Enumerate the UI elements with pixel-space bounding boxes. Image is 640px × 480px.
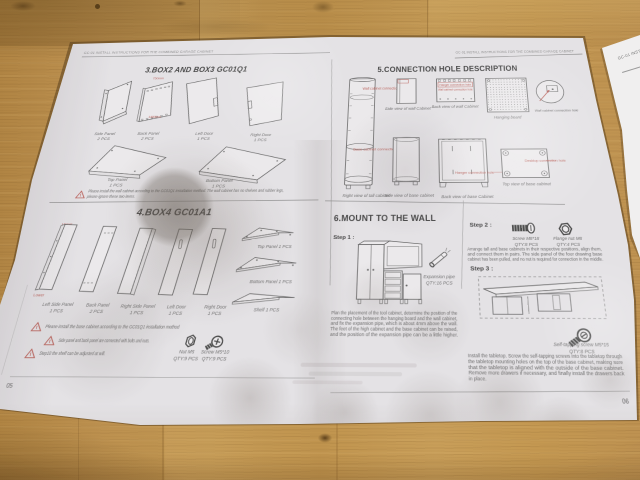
svg-text:please ignore these two items.: please ignore these two items. — [85, 194, 135, 199]
svg-text:Back view of base Cabinet: Back view of base Cabinet — [441, 195, 495, 200]
svg-text:4.BOX4 GC01A1: 4.BOX4 GC01A1 — [135, 207, 213, 218]
svg-text:QTY:16 PCS: QTY:16 PCS — [426, 281, 454, 286]
svg-text:Step 2 :: Step 2 : — [469, 222, 492, 228]
svg-text:Bottom Panel 1 PCS: Bottom Panel 1 PCS — [249, 279, 293, 284]
svg-text:Lower: Lower — [33, 292, 45, 297]
svg-text:!: ! — [29, 352, 32, 358]
svg-text:and the position of the expans: and the position of the expansion pipe c… — [330, 332, 458, 338]
svg-text:QTY:9 PCS: QTY:9 PCS — [201, 356, 227, 362]
svg-text:1 PCS: 1 PCS — [207, 311, 222, 316]
svg-text:05: 05 — [6, 382, 15, 389]
svg-text:1 PCS: 1 PCS — [168, 311, 183, 316]
svg-text:Top Panel 1 PCS: Top Panel 1 PCS — [257, 244, 293, 249]
svg-text:GC-01 INSTALL INSTRUCTIONS FO: GC-01 INSTALL INSTRUCTIONS FOR THE COMBI… — [455, 49, 574, 54]
svg-text:Back Panel: Back Panel — [86, 303, 111, 308]
svg-text:2 PCS: 2 PCS — [96, 137, 111, 141]
svg-text:1 PCS: 1 PCS — [109, 183, 124, 187]
svg-text:!: ! — [48, 339, 51, 345]
svg-text:Screw M5*10: Screw M5*10 — [201, 349, 230, 355]
svg-text:Self-tapping screw M5*15: Self-tapping screw M5*15 — [553, 342, 609, 348]
svg-text:Expansion pipe: Expansion pipe — [423, 274, 455, 279]
svg-text:Wall cabinet connection hole: Wall cabinet connection hole — [535, 108, 579, 112]
svg-text:Screw M8*18: Screw M8*18 — [512, 236, 539, 241]
svg-text:1 PCS: 1 PCS — [49, 308, 64, 313]
svg-text:Flange nut M8: Flange nut M8 — [553, 236, 583, 241]
svg-text:Please install the wall cabine: Please install the wall cabinet accordin… — [88, 188, 284, 193]
svg-text:1 PCS: 1 PCS — [197, 137, 211, 141]
svg-text:Right Door: Right Door — [250, 133, 272, 137]
svg-text:Left Side Panel: Left Side Panel — [42, 302, 75, 307]
svg-text:Right Side Panel: Right Side Panel — [120, 304, 156, 309]
svg-text:Top view of base cabinet: Top view of base cabinet — [502, 182, 552, 187]
svg-text:Desktop connection hole: Desktop connection hole — [525, 158, 567, 163]
svg-text:1 PCS: 1 PCS — [129, 310, 144, 315]
svg-text:Side view of base cabinet: Side view of base cabinet — [384, 193, 435, 198]
svg-text:Remove more drawers if necessa: Remove more drawers if necessary, and fi… — [468, 370, 625, 377]
svg-text:1450mm: 1450mm — [148, 115, 162, 119]
svg-text:Left Door: Left Door — [166, 304, 187, 309]
svg-text:Nut M5: Nut M5 — [179, 349, 195, 355]
svg-text:5.CONNECTION HOLE DESCRIPTION: 5.CONNECTION HOLE DESCRIPTION — [377, 64, 517, 74]
svg-text:Side Panel: Side Panel — [94, 132, 116, 136]
svg-text:Hanger connection hole: Hanger connection hole — [439, 83, 471, 87]
svg-text:QTY:9 PCS: QTY:9 PCS — [173, 356, 199, 362]
svg-text:Shelf 1 PCS: Shelf 1 PCS — [253, 307, 280, 312]
svg-text:3.BOX2 AND BOX3 GC01Q1: 3.BOX2 AND BOX3 GC01Q1 — [144, 65, 248, 74]
svg-text:!: ! — [35, 325, 38, 330]
svg-text:Step 1 :: Step 1 : — [333, 234, 355, 240]
svg-text:Right Door: Right Door — [204, 305, 228, 310]
svg-text:!: ! — [79, 193, 82, 197]
svg-text:1 PCS: 1 PCS — [254, 138, 268, 142]
svg-text:Back view of wall Cabinet: Back view of wall Cabinet — [432, 105, 480, 109]
svg-text:in place.: in place. — [469, 376, 487, 382]
svg-text:Hanging board: Hanging board — [494, 115, 522, 119]
svg-text:Side view of wall Cabinet: Side view of wall Cabinet — [385, 107, 432, 111]
svg-text:Please install the base cabine: Please install the base cabinet accordin… — [45, 324, 180, 330]
svg-text:Bottom Panel: Bottom Panel — [205, 179, 233, 184]
svg-text:Step10 the shelf can be adjust: Step10 the shelf can be adjusted at will… — [39, 351, 106, 357]
svg-text:06: 06 — [622, 397, 631, 405]
svg-text:Step 3 :: Step 3 : — [470, 265, 494, 271]
svg-text:GC-01 INSTALL INSTRUCTIONS FO: GC-01 INSTALL INSTRUCTIONS FOR THE COMBI… — [83, 50, 214, 55]
svg-text:Hanger connection hole: Hanger connection hole — [455, 170, 495, 175]
svg-text:Top Panel: Top Panel — [107, 178, 128, 182]
svg-text:Wall cabinet connection hole: Wall cabinet connection hole — [438, 87, 473, 91]
svg-text:2 PCS: 2 PCS — [88, 309, 105, 314]
svg-text:Side panel and back panel are: Side panel and back panel are connected … — [58, 338, 150, 344]
svg-text:750mm: 750mm — [152, 76, 164, 80]
svg-text:6.MOUNT TO THE WALL: 6.MOUNT TO THE WALL — [334, 213, 437, 224]
svg-text:Left Door: Left Door — [195, 132, 214, 136]
svg-text:cabinet has been pulled, and n: cabinet has been pulled, and no nut is r… — [468, 257, 604, 262]
svg-text:Back Panel: Back Panel — [137, 132, 160, 136]
svg-text:2 PCS: 2 PCS — [140, 137, 155, 141]
